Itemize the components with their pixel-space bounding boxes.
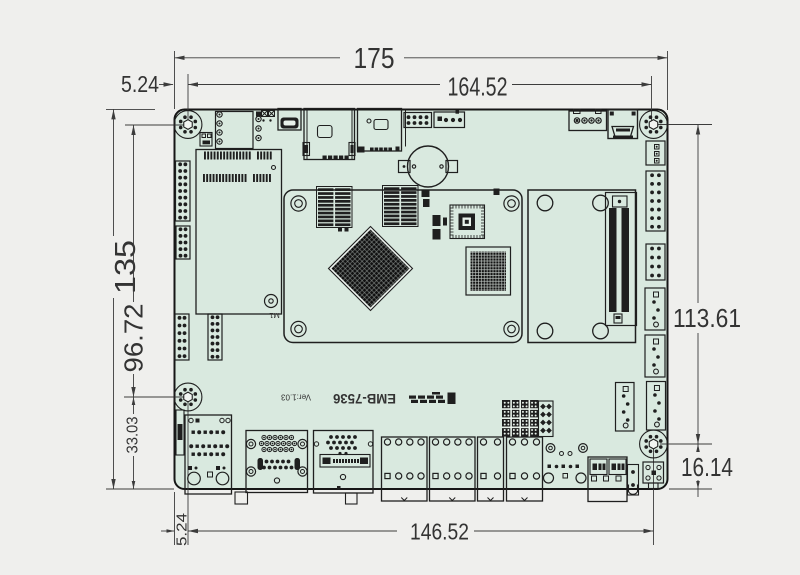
svg-text:5.24: 5.24: [174, 513, 191, 546]
svg-text:113.61: 113.61: [673, 303, 741, 333]
svg-text:M1: M1: [269, 311, 279, 320]
svg-text:135: 135: [110, 240, 142, 294]
svg-text:33.03: 33.03: [125, 416, 142, 453]
svg-text:5.24: 5.24: [121, 71, 159, 97]
svg-text:146.52: 146.52: [410, 519, 469, 545]
svg-text:175: 175: [354, 43, 395, 75]
svg-text:16.14: 16.14: [681, 452, 733, 482]
svg-text:EMB-7536: EMB-7536: [333, 391, 396, 406]
svg-text:96.72: 96.72: [119, 304, 149, 373]
svg-text:164.52: 164.52: [448, 72, 508, 102]
svg-text:Ver:1.03: Ver:1.03: [281, 393, 311, 403]
